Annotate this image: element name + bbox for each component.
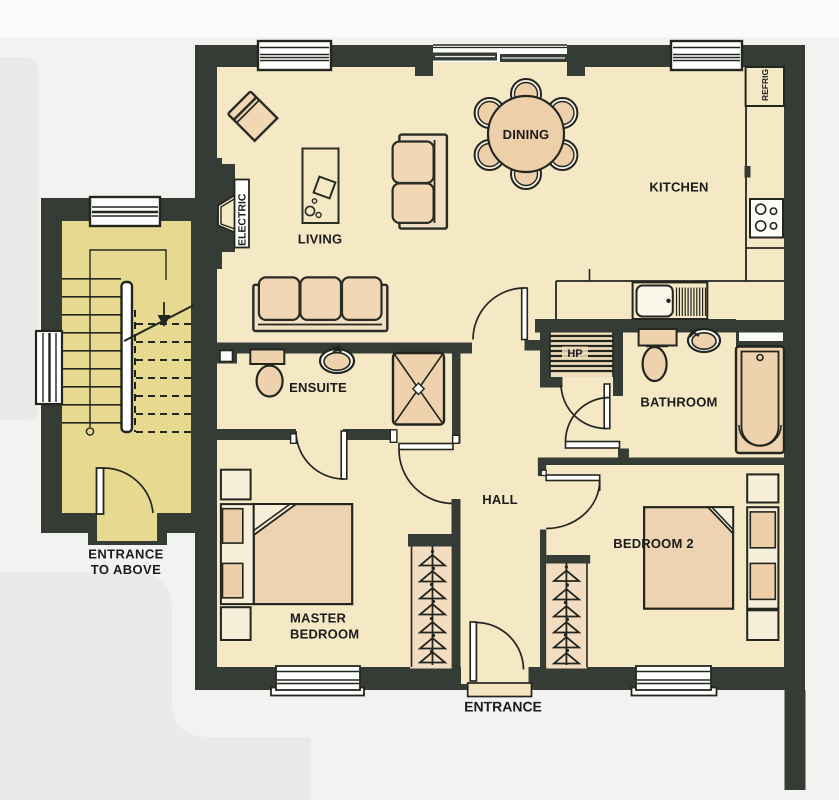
svg-text:ELECTRIC: ELECTRIC xyxy=(237,193,249,246)
svg-text:HALL: HALL xyxy=(482,492,517,507)
svg-text:KITCHEN: KITCHEN xyxy=(649,180,708,195)
svg-text:BEDROOM: BEDROOM xyxy=(290,627,359,642)
svg-text:ENTRANCE: ENTRANCE xyxy=(88,547,163,562)
svg-text:MASTER: MASTER xyxy=(290,611,347,626)
svg-text:BATHROOM: BATHROOM xyxy=(640,395,717,410)
svg-text:HP: HP xyxy=(567,348,582,360)
svg-text:BEDROOM 2: BEDROOM 2 xyxy=(613,536,694,551)
svg-text:DINING: DINING xyxy=(503,127,550,142)
svg-text:ENSUITE: ENSUITE xyxy=(289,380,347,395)
svg-text:REFRIG: REFRIG xyxy=(760,69,770,102)
svg-text:ENTRANCE: ENTRANCE xyxy=(464,699,542,715)
svg-text:LIVING: LIVING xyxy=(298,232,343,247)
svg-text:TO ABOVE: TO ABOVE xyxy=(91,562,161,577)
